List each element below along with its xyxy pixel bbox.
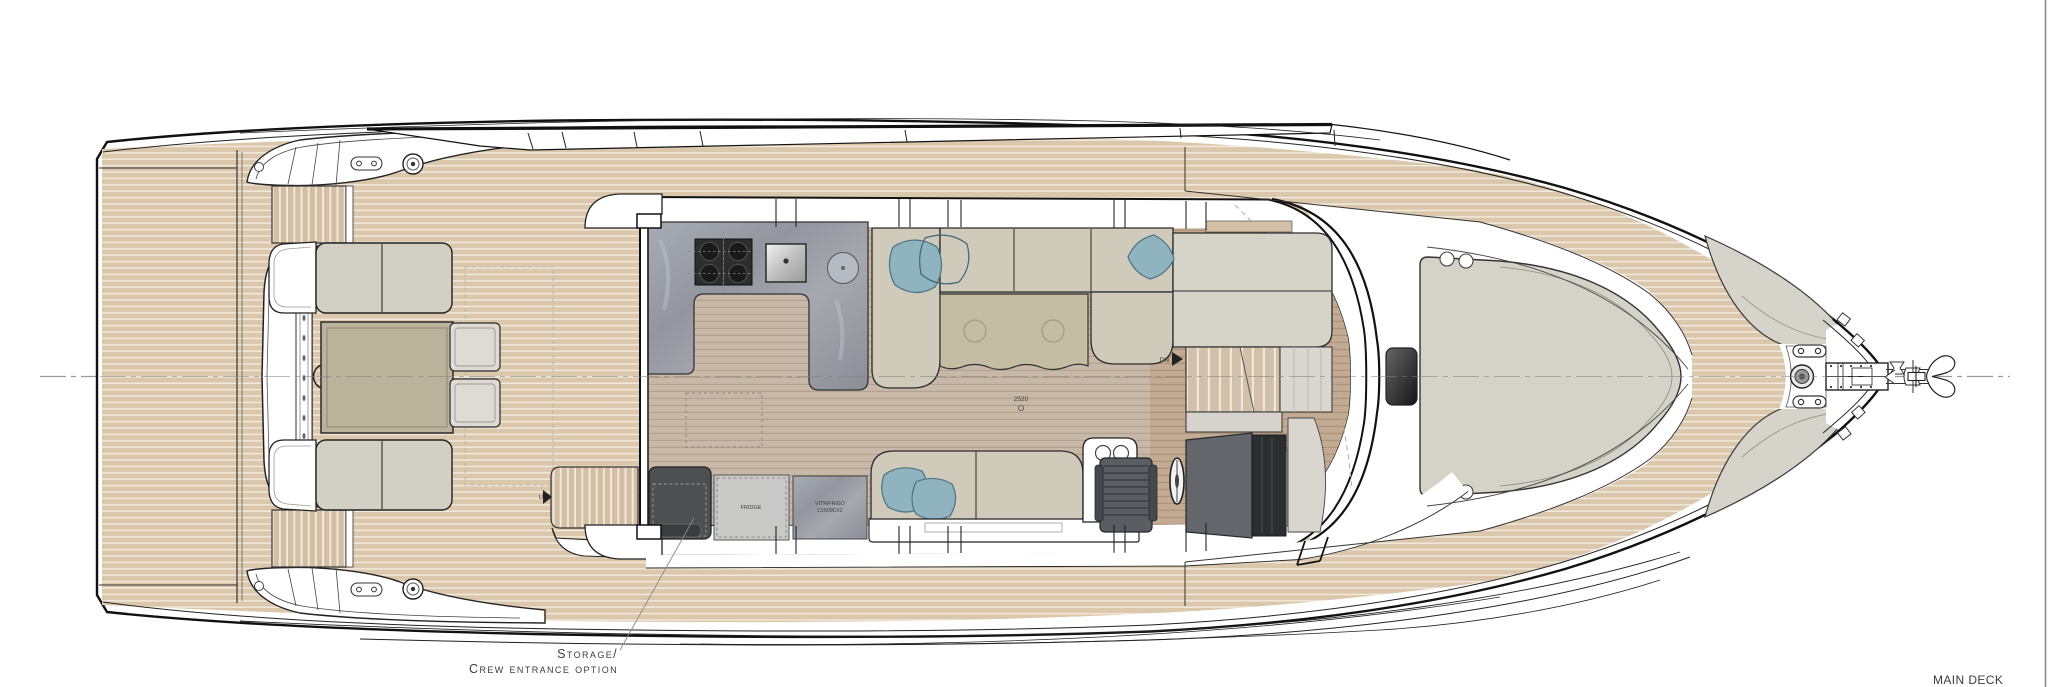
svg-text:Storage/: Storage/ xyxy=(557,647,618,661)
svg-text:DN: DN xyxy=(1160,357,1170,364)
svg-text:2520: 2520 xyxy=(1014,396,1029,403)
svg-text:Crew entrance option: Crew entrance option xyxy=(469,662,618,676)
svg-text:VITRIFRIGO: VITRIFRIGO xyxy=(815,501,845,507)
svg-text:MAIN DECK: MAIN DECK xyxy=(1933,673,2003,687)
svg-text:FRIDGE: FRIDGE xyxy=(741,505,762,511)
svg-text:C1600CX2: C1600CX2 xyxy=(817,508,842,514)
